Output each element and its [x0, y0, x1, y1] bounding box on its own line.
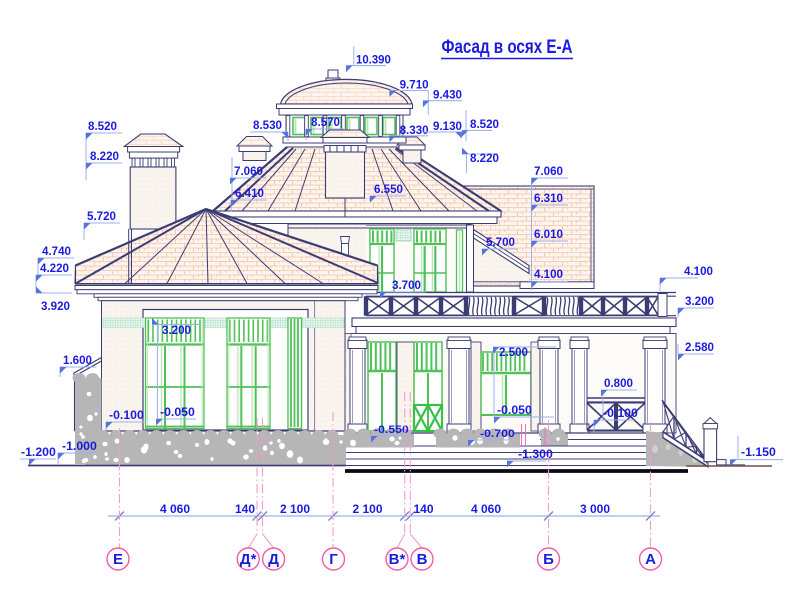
svg-text:4.100: 4.100	[684, 264, 713, 278]
svg-text:3 000: 3 000	[580, 502, 610, 516]
svg-text:8.220: 8.220	[470, 151, 499, 165]
svg-text:-1.300: -1.300	[518, 447, 553, 461]
svg-text:-1.000: -1.000	[62, 439, 97, 453]
svg-text:-0.050: -0.050	[160, 405, 195, 419]
svg-text:3.200: 3.200	[162, 323, 191, 337]
svg-text:6.410: 6.410	[235, 186, 264, 200]
svg-text:10.390: 10.390	[356, 53, 391, 67]
svg-text:9.430: 9.430	[433, 88, 462, 102]
svg-text:4.100: 4.100	[534, 267, 563, 281]
svg-text:3.920: 3.920	[41, 299, 70, 313]
svg-text:8.530: 8.530	[253, 118, 282, 132]
svg-text:7.060: 7.060	[534, 164, 563, 178]
svg-text:6.010: 6.010	[534, 227, 563, 241]
svg-text:2.500: 2.500	[499, 345, 528, 359]
svg-text:8.220: 8.220	[90, 149, 119, 163]
svg-text:9.710: 9.710	[400, 78, 429, 92]
svg-text:6.310: 6.310	[534, 191, 563, 205]
svg-text:2 100: 2 100	[352, 502, 382, 516]
svg-text:0.800: 0.800	[604, 376, 633, 390]
svg-text:-0.100: -0.100	[603, 406, 638, 420]
svg-text:В: В	[417, 551, 428, 568]
svg-text:-1.200: -1.200	[21, 445, 56, 459]
svg-text:4 060: 4 060	[160, 502, 190, 516]
svg-text:А: А	[645, 551, 656, 568]
svg-text:Е: Е	[113, 551, 123, 568]
svg-text:5.700: 5.700	[486, 235, 515, 249]
svg-text:7.060: 7.060	[234, 164, 263, 178]
svg-text:5.720: 5.720	[87, 209, 116, 223]
svg-text:140: 140	[235, 502, 255, 516]
svg-text:Б: Б	[543, 551, 554, 568]
svg-text:3.700: 3.700	[392, 278, 421, 292]
svg-text:Д: Д	[268, 551, 279, 568]
svg-text:-0.050: -0.050	[497, 403, 532, 417]
svg-text:8.570: 8.570	[311, 115, 340, 129]
svg-text:Д*: Д*	[240, 551, 257, 568]
svg-text:4.740: 4.740	[42, 244, 71, 258]
svg-text:-0.700: -0.700	[480, 428, 515, 440]
svg-text:-1.150: -1.150	[741, 445, 776, 459]
svg-text:140: 140	[413, 502, 433, 516]
svg-text:-0.550: -0.550	[374, 424, 409, 436]
svg-text:Г: Г	[329, 551, 338, 568]
svg-text:1.600: 1.600	[63, 353, 92, 367]
svg-text:2 100: 2 100	[280, 502, 310, 516]
svg-text:4 060: 4 060	[471, 502, 501, 516]
svg-text:8.330: 8.330	[400, 123, 429, 137]
svg-text:8.520: 8.520	[470, 117, 499, 131]
svg-text:3.200: 3.200	[685, 294, 714, 308]
svg-text:9.130: 9.130	[433, 119, 462, 133]
svg-text:6.550: 6.550	[374, 182, 403, 196]
svg-text:2.580: 2.580	[685, 340, 714, 354]
svg-text:В*: В*	[389, 551, 406, 568]
svg-text:4.220: 4.220	[40, 261, 69, 275]
svg-text:8.520: 8.520	[88, 119, 117, 133]
svg-text:Фасад в осях Е-А: Фасад в осях Е-А	[442, 36, 573, 58]
svg-text:-0.100: -0.100	[109, 408, 144, 422]
